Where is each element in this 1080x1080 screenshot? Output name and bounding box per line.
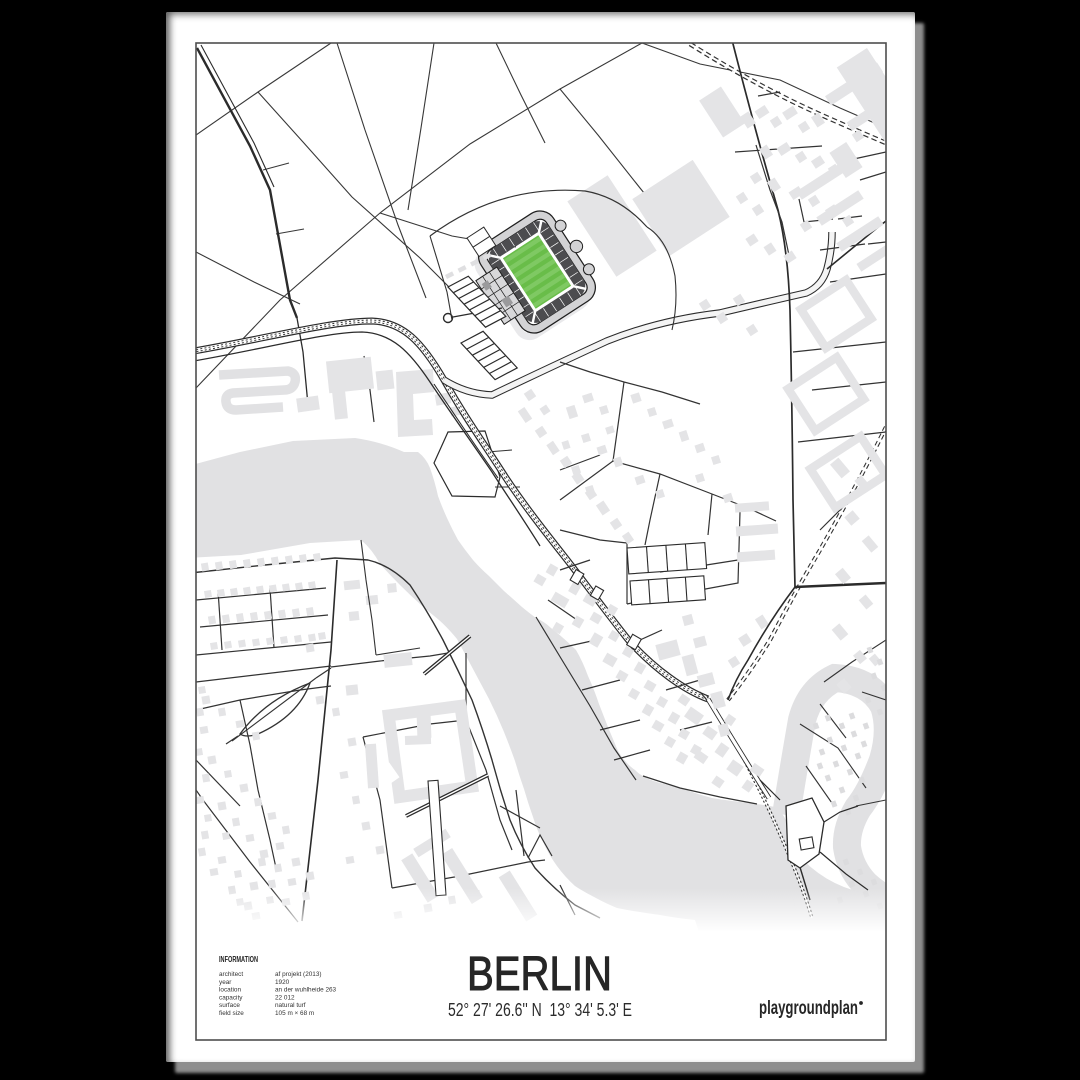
svg-text:52° 27' 26.6'' N 13° 34' 5.3': 52° 27' 26.6'' N 13° 34' 5.3' E [448,1000,632,1020]
svg-text:architect: architect [219,971,243,978]
svg-text:location: location [219,987,241,994]
svg-text:year: year [219,979,232,986]
svg-text:capacity: capacity [219,994,243,1001]
svg-text:an der wuhlheide 263: an der wuhlheide 263 [275,987,337,994]
svg-text:af projekt (2013): af projekt (2013) [275,971,322,978]
svg-text:surface: surface [219,1002,240,1009]
svg-text:natural turf: natural turf [275,1002,306,1009]
svg-text:105 m × 68 m: 105 m × 68 m [275,1010,314,1017]
svg-text:field size: field size [219,1010,244,1017]
svg-text:1920: 1920 [275,979,290,986]
svg-text:INFORMATION: INFORMATION [219,955,258,964]
svg-text:BERLIN: BERLIN [467,948,612,1001]
svg-text:playgroundplan: playgroundplan [759,998,858,1019]
svg-text:22 012: 22 012 [275,994,295,1001]
